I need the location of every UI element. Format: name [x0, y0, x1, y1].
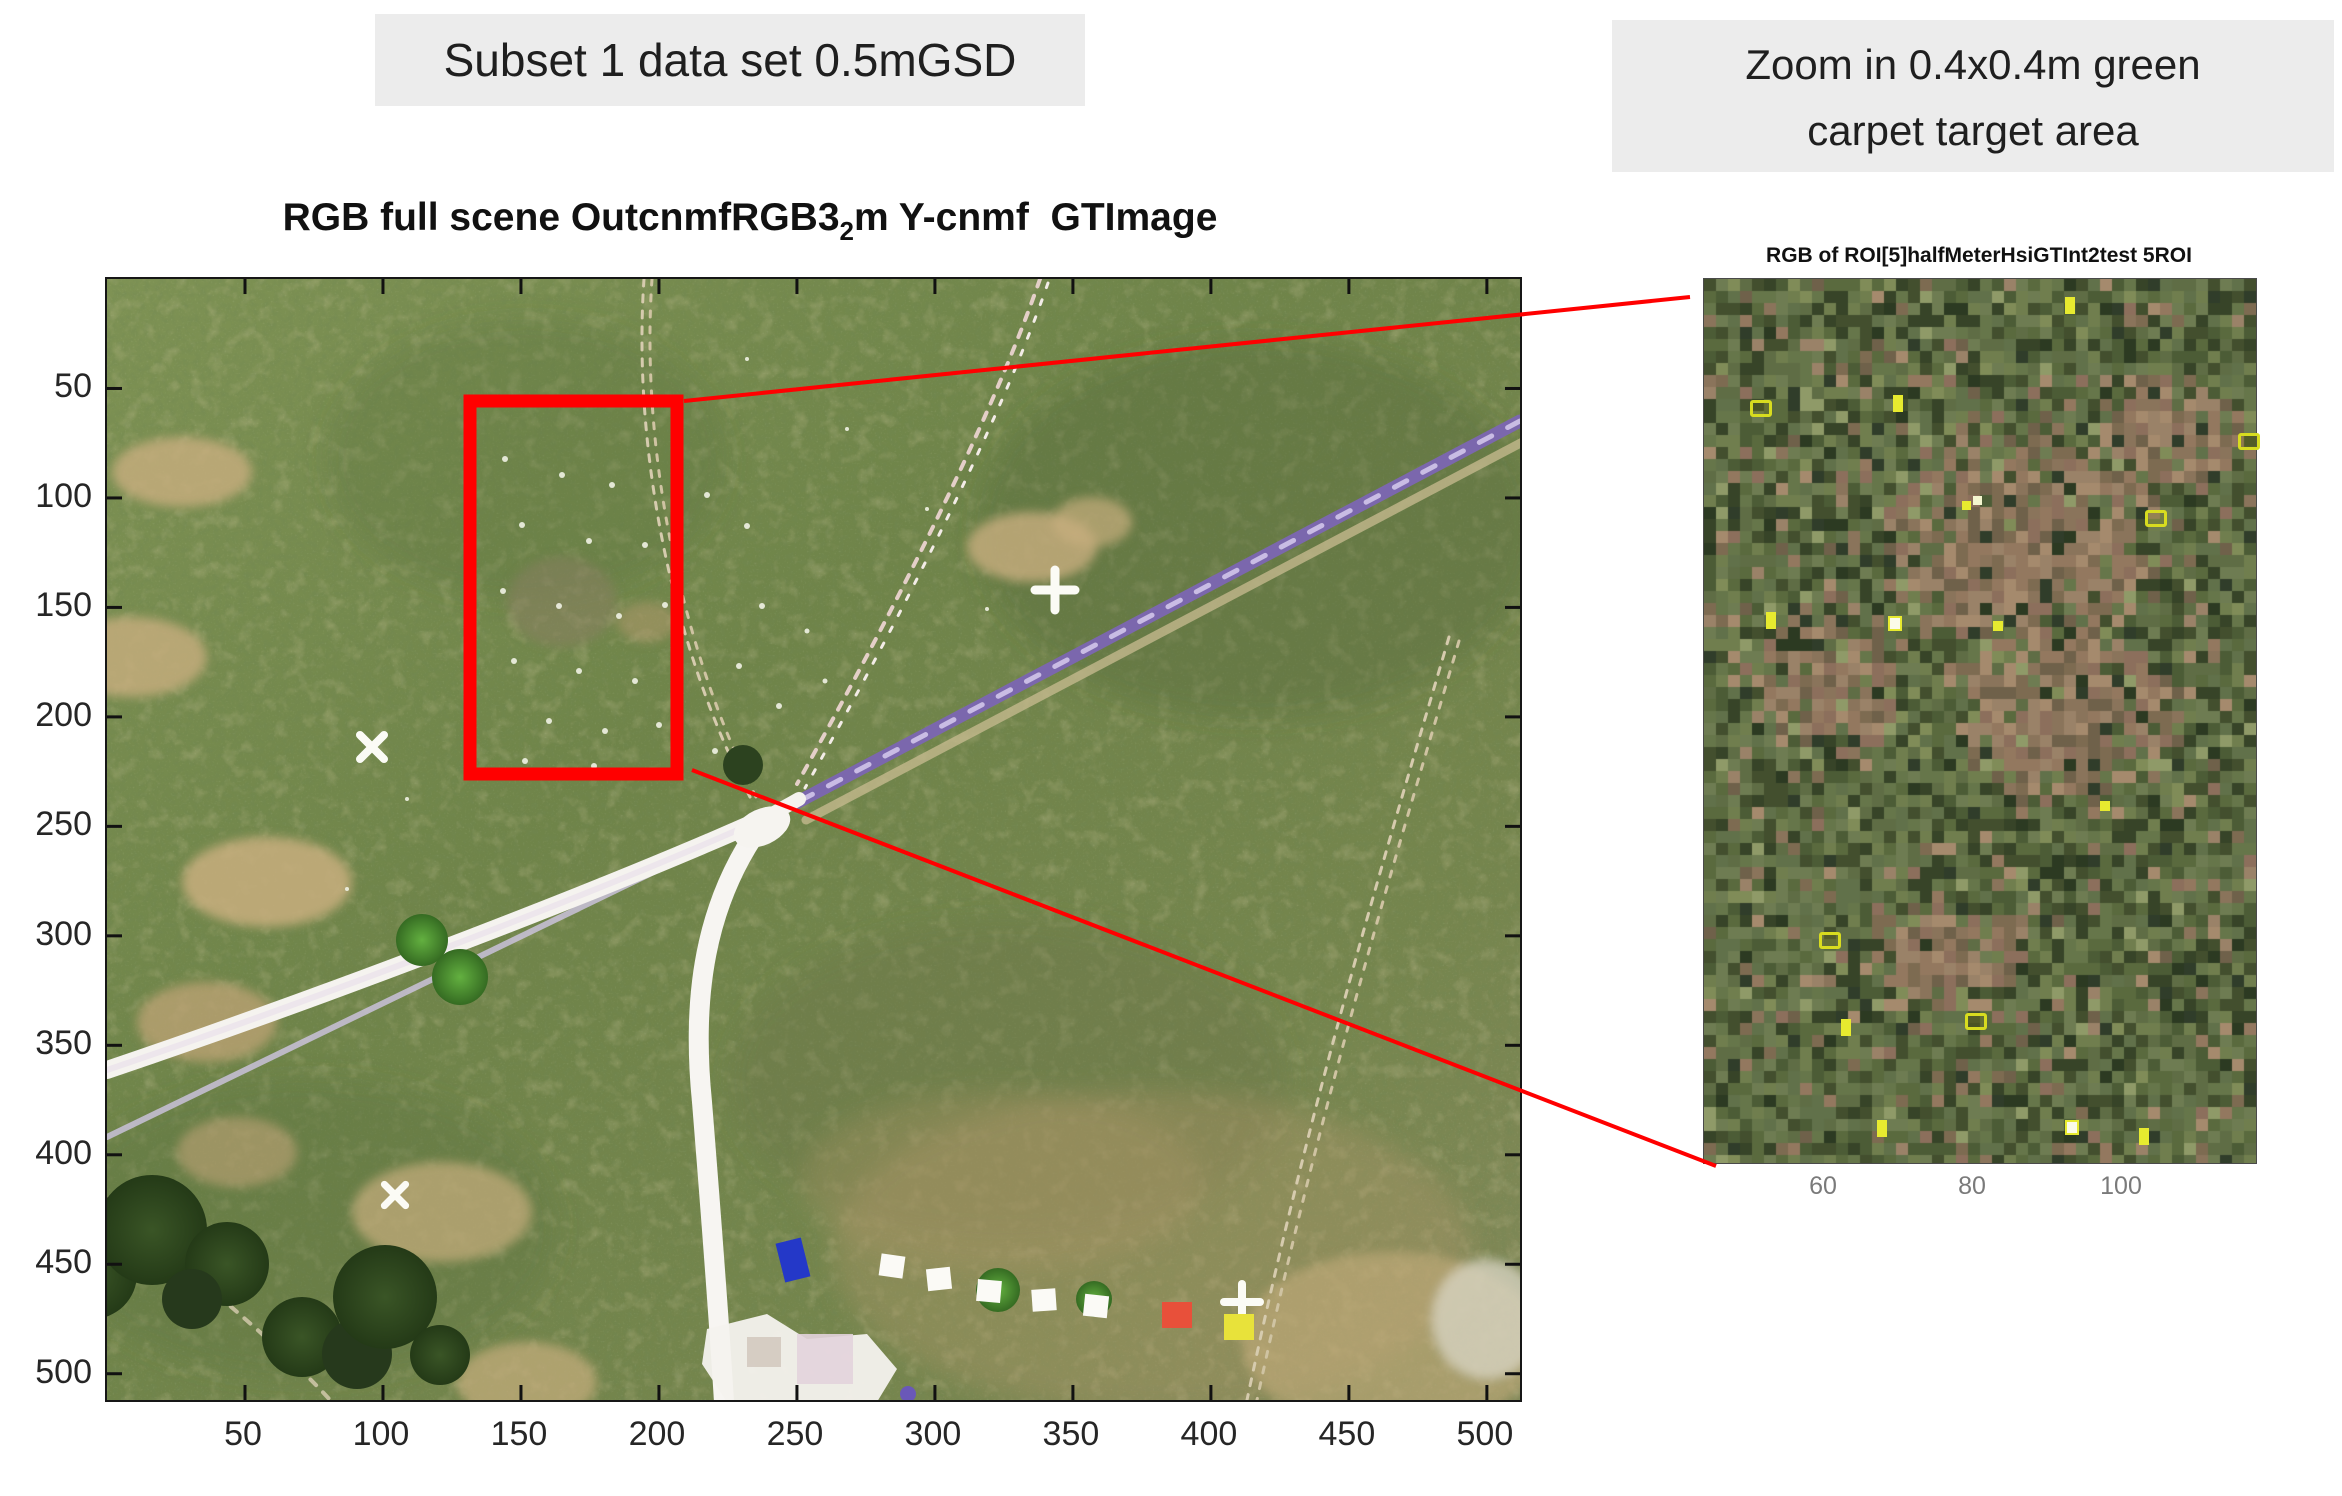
roi-x-axis-tick-label: 80 [1958, 1172, 1986, 1201]
purple-dot [900, 1386, 916, 1402]
roi-mosaic-image [1704, 279, 2256, 1163]
y-axis-tick-label: 100 [0, 477, 92, 516]
roi-x-axis-tick-label: 60 [1809, 1172, 1837, 1201]
y-axis-tick-label: 150 [0, 586, 92, 625]
x-axis-tick-label: 300 [905, 1415, 962, 1454]
main-title-subscript: 2 [840, 216, 854, 246]
x-axis-tick-label: 500 [1457, 1415, 1514, 1454]
main-plot-title: RGB full scene OutcnmfRGB32m Y-cnmf GTIm… [105, 196, 1395, 247]
x-axis-tick-label: 450 [1319, 1415, 1376, 1454]
y-axis-tick-label: 200 [0, 696, 92, 735]
zoom-caption-line2: carpet target area [1612, 98, 2334, 164]
y-axis-tick-label: 50 [0, 367, 92, 406]
x-axis-tick-label: 350 [1043, 1415, 1100, 1454]
yellow-panel [1224, 1314, 1254, 1340]
y-axis-tick-label: 250 [0, 805, 92, 844]
x-axis-tick-label: 100 [353, 1415, 410, 1454]
subset-caption-text: Subset 1 data set 0.5mGSD [444, 34, 1017, 86]
y-axis-tick-label: 450 [0, 1243, 92, 1282]
x-axis-tick-label: 400 [1181, 1415, 1238, 1454]
y-axis-tick-label: 400 [0, 1134, 92, 1173]
y-axis-tick-label: 500 [0, 1353, 92, 1392]
main-title-prefix: RGB full scene OutcnmfRGB3 [283, 196, 840, 239]
roi-x-axis-tick-label: 100 [2100, 1172, 2142, 1201]
roi-plot-title: RGB of ROI[5]halfMeterHsiGTInt2test 5ROI [1629, 244, 2329, 268]
aerial-scene-plot [105, 277, 1522, 1402]
roi-zoom-plot [1703, 278, 2257, 1164]
x-axis-tick-label: 150 [491, 1415, 548, 1454]
y-axis-tick-label: 350 [0, 1024, 92, 1063]
zoom-caption-box: Zoom in 0.4x0.4m green carpet target are… [1612, 20, 2334, 172]
main-title-suffix: m Y-cnmf GTImage [854, 196, 1217, 239]
figure-canvas: Subset 1 data set 0.5mGSD Zoom in 0.4x0.… [0, 0, 2342, 1496]
x-axis-tick-label: 250 [767, 1415, 824, 1454]
x-axis-tick-label: 200 [629, 1415, 686, 1454]
x-axis-tick-label: 50 [224, 1415, 262, 1454]
y-axis-tick-label: 300 [0, 915, 92, 954]
zoom-caption-line1: Zoom in 0.4x0.4m green [1612, 32, 2334, 98]
subset-caption-box: Subset 1 data set 0.5mGSD [375, 14, 1085, 106]
orange-panel [1162, 1302, 1192, 1328]
